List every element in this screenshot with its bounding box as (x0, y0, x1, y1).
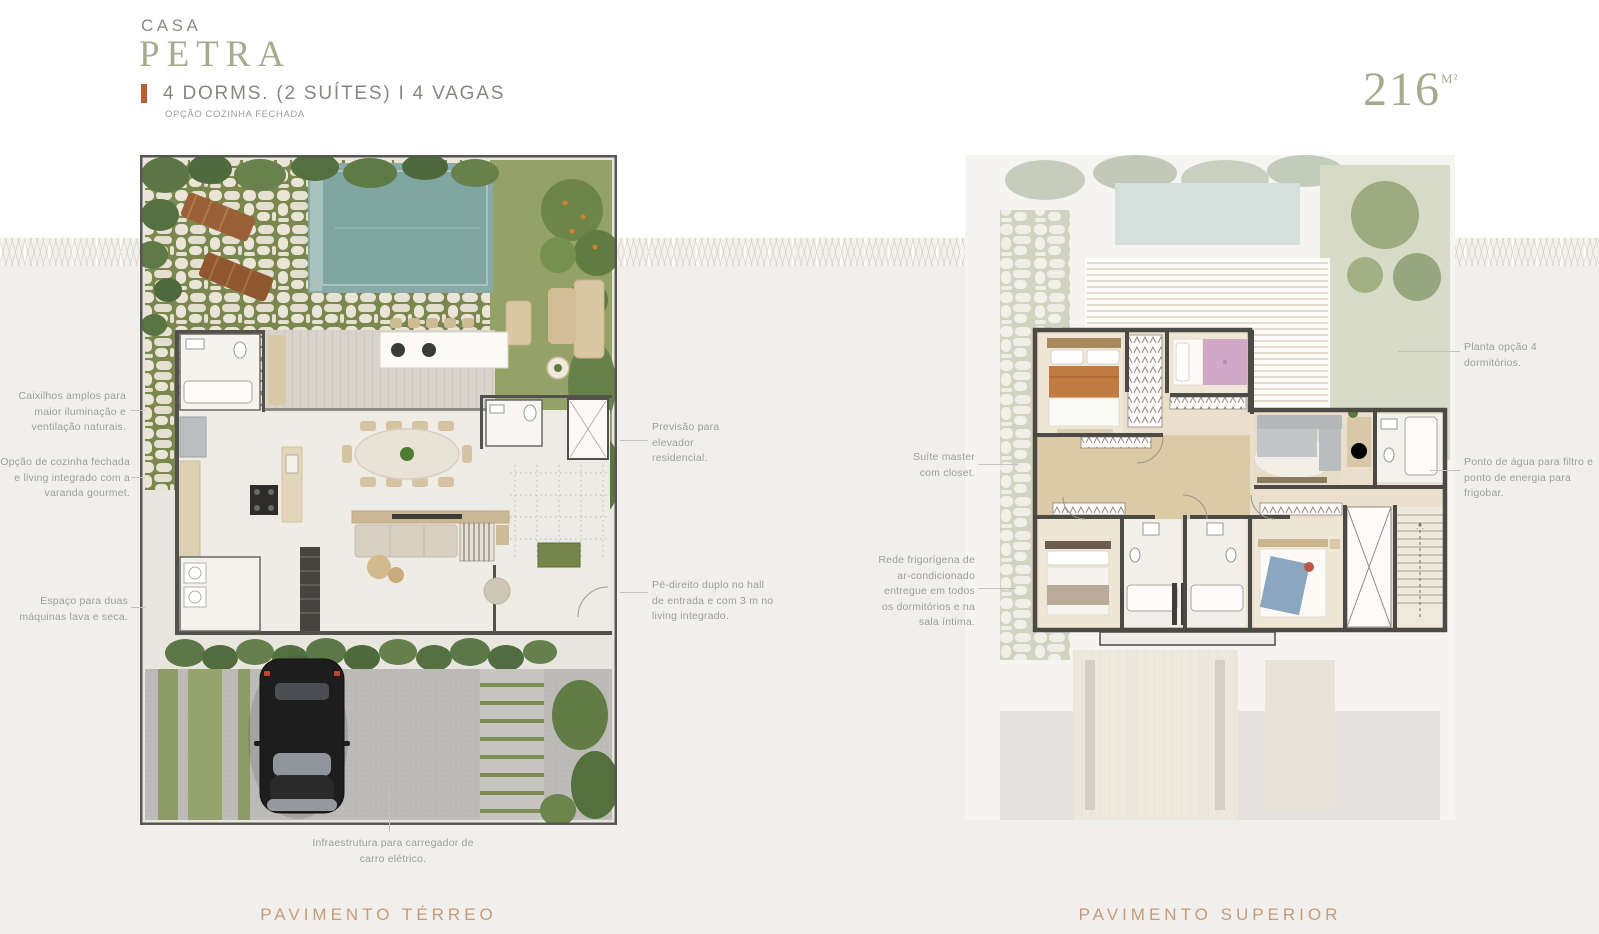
annotation-ac-network: Rede frigorígena de ar-condicionado entr… (871, 553, 975, 631)
bedroom2-bed (1173, 339, 1247, 385)
annotation-laundry: Espaço para duas máquinas lava e seca. (18, 594, 128, 625)
annotation-water-point: Ponto de água para filtro e ponto de ene… (1464, 455, 1594, 502)
ground-floor-caption: PAVIMENTO TÉRREO (140, 905, 617, 925)
laundry (180, 557, 260, 631)
leader-line (978, 588, 1016, 589)
ground-floor-plan-drawing (140, 155, 617, 825)
annotation-elevator: Previsão para elevador residencial. (652, 420, 732, 467)
bedroom3-bed (1045, 541, 1111, 615)
annotation-4-bedrooms-option: Planta opção 4 dormitórios. (1464, 340, 1544, 371)
upper-floor-caption: PAVIMENTO SUPERIOR (965, 905, 1455, 925)
area-unit: M² (1441, 71, 1458, 86)
annotation-closed-kitchen: Opção de cozinha fechada e living integr… (0, 455, 130, 502)
unit-specs: 4 DORMS. (2 SUÍTES) I 4 VAGAS (163, 83, 505, 105)
leader-line (131, 477, 145, 478)
stairs (460, 523, 494, 561)
ground-floor-plan (140, 155, 617, 825)
accent-bar (141, 84, 147, 103)
leader-line (389, 790, 390, 832)
upper-floor-plan-drawing (965, 155, 1455, 820)
kitchen-option-note: OPÇÃO COZINHA FECHADA (165, 109, 305, 120)
gourmet-terrace (262, 318, 508, 412)
leader-line (1398, 351, 1460, 352)
upper-stairs (1397, 507, 1443, 627)
annotation-windows: Caixilhos amplos para maior iluminação e… (14, 389, 126, 436)
brochure-page: CASA PETRA 4 DORMS. (2 SUÍTES) I 4 VAGAS… (0, 0, 1599, 934)
entry-planter (538, 543, 580, 567)
upper-floor-plan (965, 155, 1455, 820)
lavabo (486, 400, 542, 446)
elevator-shaft (568, 399, 608, 459)
bathroom-service (180, 334, 260, 410)
leader-line (1430, 470, 1460, 471)
leader-line (620, 592, 648, 593)
leader-line (620, 440, 648, 441)
desk (1347, 417, 1371, 467)
car (248, 655, 350, 819)
driveway (145, 669, 617, 825)
unit-name: PETRA (139, 33, 291, 76)
annotation-ceiling-height: Pé-direito duplo no hall de entrada e co… (652, 578, 774, 625)
balcony-ledge (1100, 632, 1275, 645)
void-shaft (1347, 507, 1391, 627)
annotation-master-suite: Suíte master com closet. (897, 450, 975, 481)
area-value: 216 (1363, 63, 1441, 116)
unit-area: 216M² (1363, 62, 1458, 117)
cooktop (250, 485, 278, 515)
stepping-path (480, 669, 544, 820)
annotation-ev-charger: Infraestrutura para carregador de carro … (308, 836, 478, 867)
leader-line (131, 410, 145, 411)
leader-line (131, 607, 145, 608)
leader-line (978, 464, 1018, 465)
wine-rack (300, 547, 320, 631)
